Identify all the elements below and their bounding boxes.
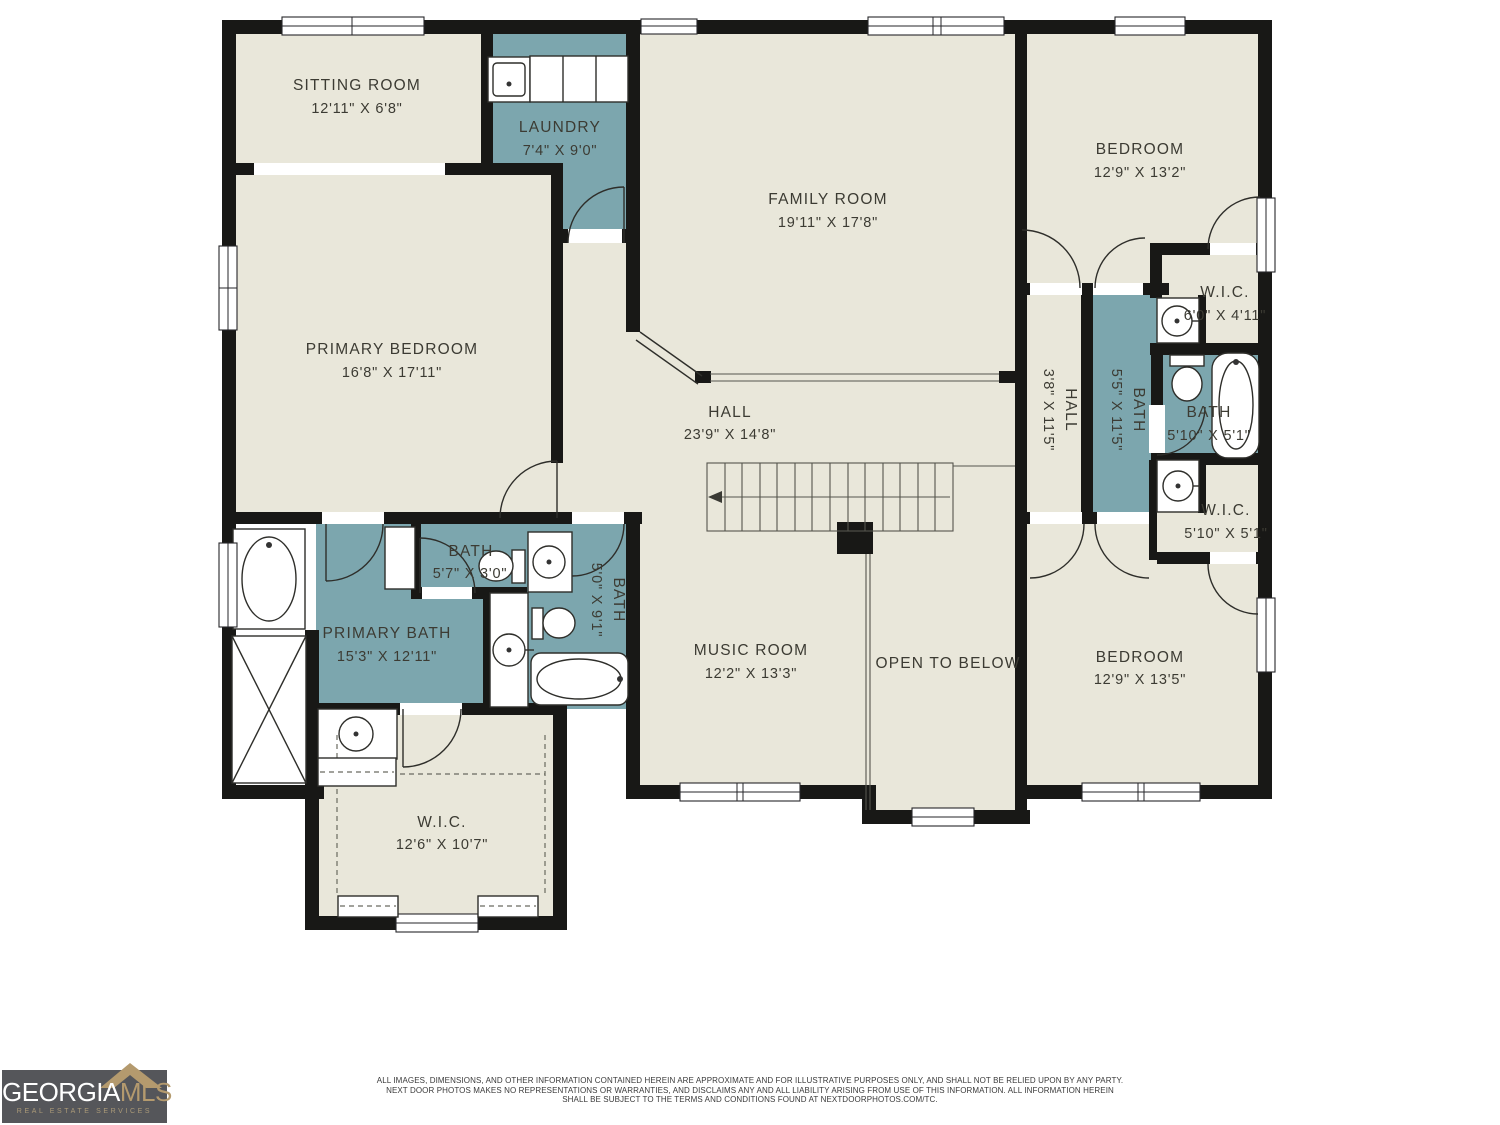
room-label: LAUNDRY bbox=[519, 119, 601, 136]
floor-plan-drawing: SITTING ROOM 12'11" X 6'8" LAUNDRY 7'4" … bbox=[0, 0, 1500, 1125]
room-dims: 12'9" X 13'2" bbox=[1094, 165, 1186, 181]
room-label: HALL bbox=[708, 404, 752, 421]
room-dims: 5'7" X 3'0" bbox=[433, 566, 508, 582]
room-dims: 3'8" X 11'5" bbox=[1040, 369, 1056, 451]
disclaimer-line-2: NEXT DOOR PHOTOS MAKES NO REPRESENTATION… bbox=[330, 1086, 1170, 1096]
room-label: W.I.C. bbox=[1201, 502, 1250, 519]
room-label: BEDROOM bbox=[1096, 141, 1185, 158]
floor-plan-page: SITTING ROOM 12'11" X 6'8" LAUNDRY 7'4" … bbox=[0, 0, 1500, 1125]
room-label: PRIMARY BEDROOM bbox=[306, 341, 478, 358]
room-label: BATH bbox=[1130, 388, 1147, 433]
room-label: SITTING ROOM bbox=[293, 77, 421, 94]
georgia-mls-logo: GEORGIAMLS REAL ESTATE SERVICES bbox=[2, 1070, 167, 1123]
linen-closet bbox=[385, 527, 415, 589]
room-label: PRIMARY BATH bbox=[323, 625, 452, 642]
logo-text-georgia: GEORGIA bbox=[2, 1077, 120, 1107]
room-dims: 7'4" X 9'0" bbox=[523, 143, 598, 159]
room-label: BATH bbox=[449, 543, 494, 560]
room-dims: 23'9" X 14'8" bbox=[684, 427, 776, 443]
room-dims: 16'8" X 17'11" bbox=[342, 365, 442, 381]
room-dims: 12'11" X 6'8" bbox=[311, 101, 402, 117]
logo-wordmark: GEORGIAMLS bbox=[2, 1079, 167, 1105]
room-dims: 19'11" X 17'8" bbox=[778, 215, 878, 231]
room-label: BEDROOM bbox=[1096, 649, 1185, 666]
room-label: BATH bbox=[1187, 404, 1232, 421]
room-dims: 5'10" X 5'1" bbox=[1167, 428, 1250, 444]
room-dims: 6'0" X 4'11" bbox=[1184, 308, 1266, 324]
room-label: BATH bbox=[610, 578, 627, 623]
room-dims: 12'2" X 13'3" bbox=[705, 666, 797, 682]
room-label: W.I.C. bbox=[417, 814, 466, 831]
washer-dryer-icon bbox=[530, 56, 628, 102]
room-label: MUSIC ROOM bbox=[694, 642, 808, 659]
disclaimer-text: ALL IMAGES, DIMENSIONS, AND OTHER INFORM… bbox=[330, 1076, 1170, 1105]
room-label: HALL bbox=[1062, 388, 1079, 432]
logo-text-mls: MLS bbox=[120, 1077, 172, 1107]
logo-tagline: REAL ESTATE SERVICES bbox=[2, 1108, 167, 1115]
room-dims: 5'10" X 5'1" bbox=[1184, 526, 1267, 542]
room-label: W.I.C. bbox=[1200, 284, 1249, 301]
room-dims: 12'6" X 10'7" bbox=[396, 837, 488, 853]
room-dims: 15'3" X 12'11" bbox=[337, 649, 437, 665]
toilet-icon bbox=[1170, 355, 1204, 366]
disclaimer-line-3: SHALL BE SUBJECT TO THE TERMS AND CONDIT… bbox=[330, 1095, 1170, 1105]
room-label: FAMILY ROOM bbox=[768, 191, 887, 208]
room-label: OPEN TO BELOW bbox=[875, 655, 1020, 672]
toilet-icon bbox=[532, 608, 543, 639]
disclaimer-line-1: ALL IMAGES, DIMENSIONS, AND OTHER INFORM… bbox=[330, 1076, 1170, 1086]
toilet-icon bbox=[512, 550, 525, 583]
room-dims: 5'0" X 9'1" bbox=[588, 563, 604, 638]
room-dims: 5'5" X 11'5" bbox=[1108, 369, 1124, 451]
room-dims: 12'9" X 13'5" bbox=[1094, 672, 1186, 688]
